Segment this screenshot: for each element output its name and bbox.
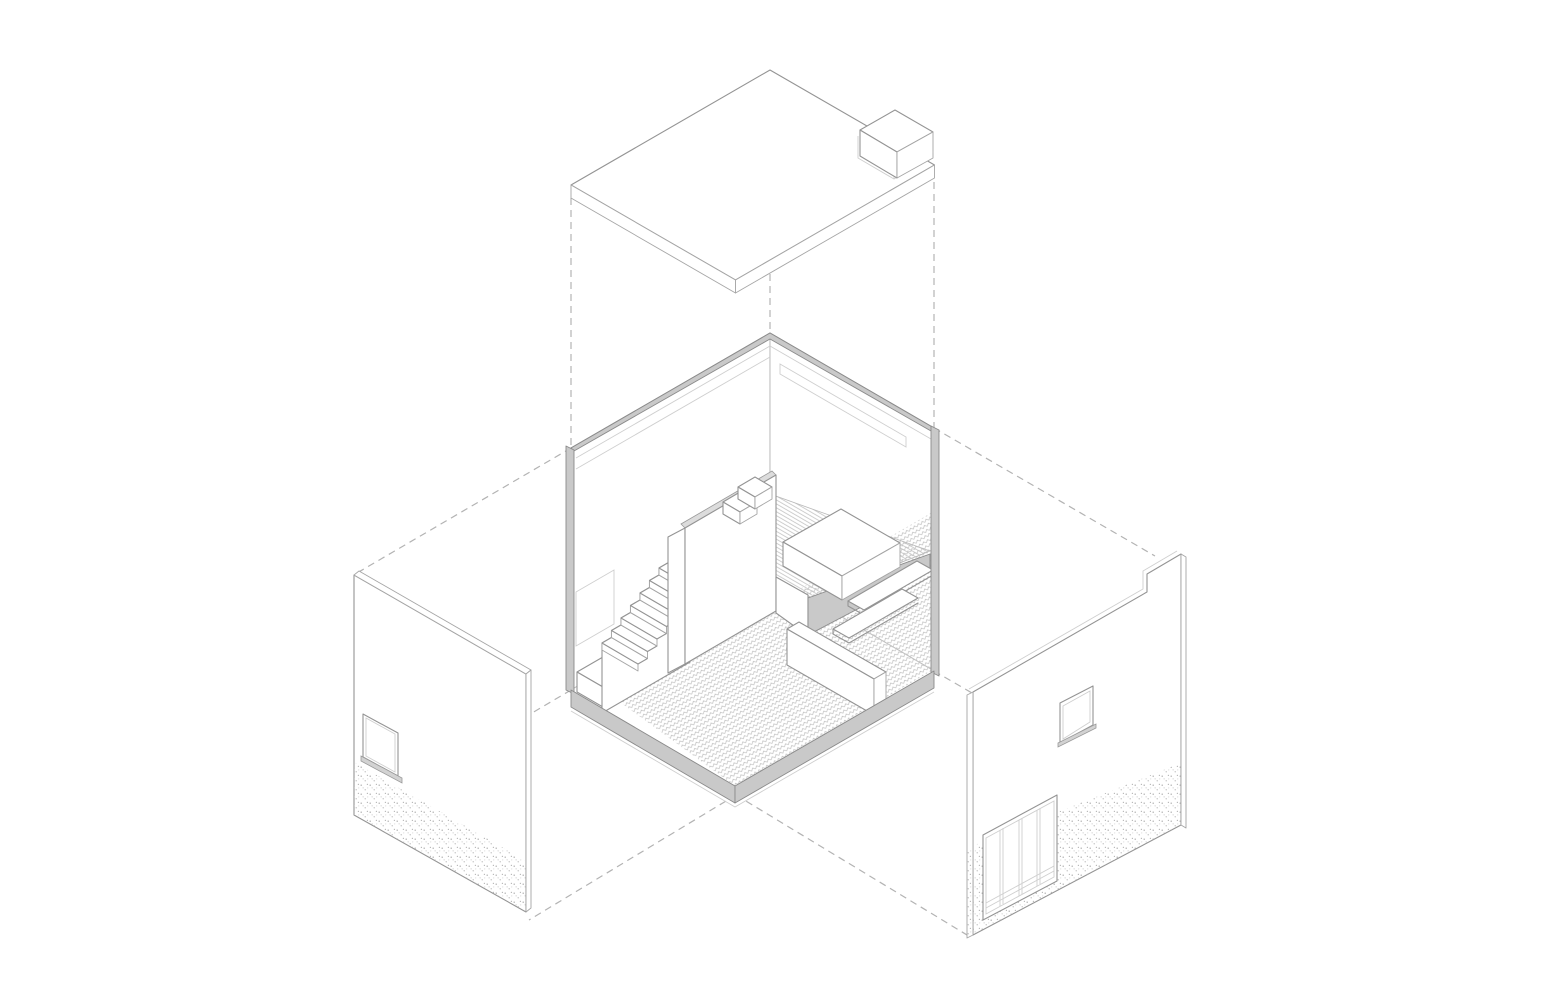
- right-facade-panel: [967, 551, 1186, 938]
- left-panel-side-edge: [526, 670, 531, 912]
- guide-right-panel-mid: [934, 671, 972, 693]
- diagram-stage: [0, 0, 1545, 1000]
- under-stair-return-wall: [668, 528, 685, 673]
- axonometric-diagram-canvas: [0, 0, 1545, 1000]
- roof-slab-top: [571, 70, 935, 280]
- right-panel-right-edge: [1181, 554, 1186, 828]
- guide-left-panel-top: [357, 448, 571, 573]
- right-wall-cut-edge: [931, 426, 939, 676]
- guide-right-panel-bottom: [736, 795, 972, 938]
- guide-left-panel-mid: [532, 690, 571, 713]
- left-facade-panel: [354, 571, 531, 912]
- guide-right-panel-top: [934, 428, 1155, 556]
- guide-left-panel-bottom: [529, 795, 736, 920]
- roof-assembly: [571, 70, 935, 293]
- right-panel-stipple-side: [967, 848, 973, 938]
- left-wall-cut-edge: [566, 446, 574, 694]
- room-module: [566, 333, 939, 807]
